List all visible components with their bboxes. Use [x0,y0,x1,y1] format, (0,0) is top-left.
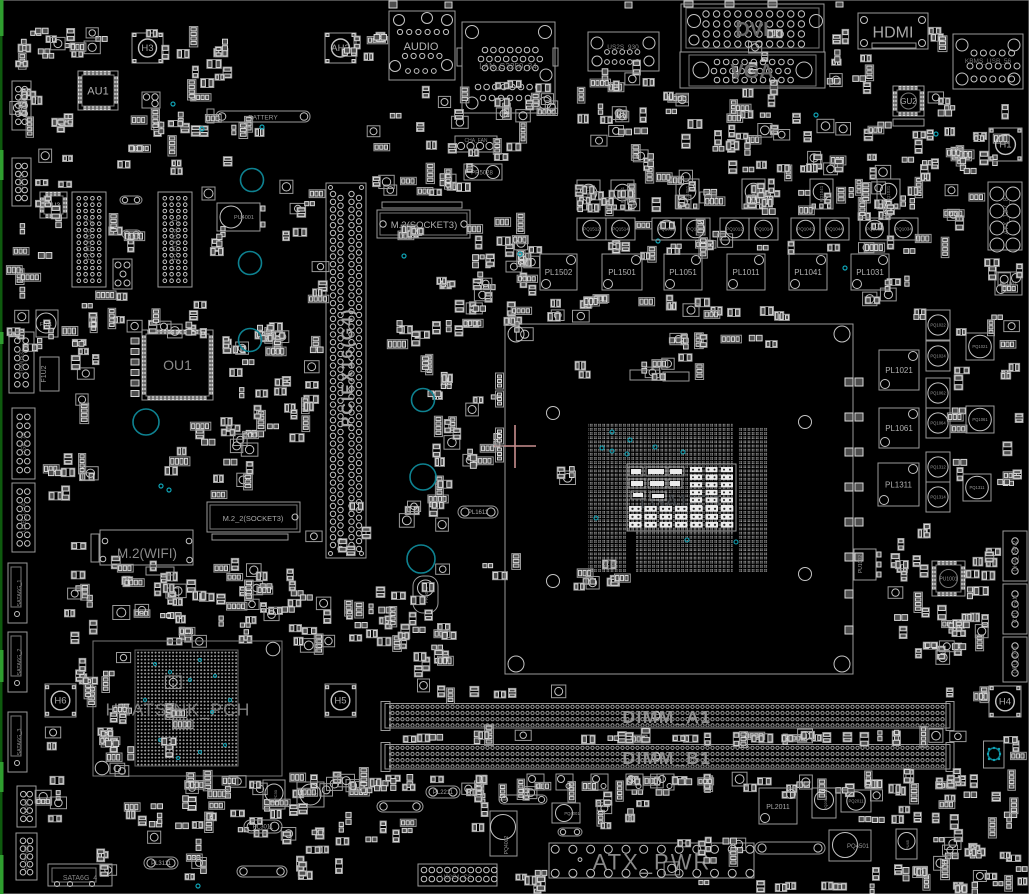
svg-text:OU1: OU1 [163,357,192,373]
svg-text:H3: H3 [141,43,153,54]
svg-text:PCIEX16(G4): PCIEX16(G4) [340,308,357,428]
svg-text:CPU_OPT: CPU_OPT [1013,645,1019,674]
svg-text:H4: H4 [999,697,1011,708]
svg-text:CHA_FAN2: CHA_FAN2 [1013,540,1019,572]
svg-text:PQ1514: PQ1514 [612,227,629,232]
svg-text:KBMS_USB_56: KBMS_USB_56 [965,58,1012,65]
svg-text:COM1: COM1 [25,797,31,815]
svg-text:US2S_930: US2S_930 [607,44,639,51]
svg-text:PQ1012: PQ1012 [726,227,743,232]
svg-text:PQ1014: PQ1014 [755,227,772,232]
svg-text:M.2(WIFI): M.2(WIFI) [117,546,177,561]
svg-text:F_PANEL: F_PANEL [25,843,31,870]
svg-text:USB_7B: USB_7B [22,432,28,455]
svg-text:PQ1512: PQ1512 [583,227,600,232]
svg-text:AU1: AU1 [87,86,108,98]
svg-text:PQ1032: PQ1032 [866,227,883,232]
svg-text:PQ1021: PQ1021 [972,344,988,349]
svg-text:PQ4001: PQ4001 [564,811,580,816]
svg-text:SATA6G_2: SATA6G_2 [17,648,23,675]
svg-text:PL1611: PL1611 [468,510,489,516]
svg-text:AUDIO: AUDIO [404,41,439,53]
svg-text:PU45: PU45 [905,839,910,850]
svg-text:PQ1314: PQ1314 [930,495,946,500]
svg-text:PL1011: PL1011 [733,268,761,277]
svg-text:PLED(G3L_2: PLED(G3L_2 [86,219,93,261]
svg-text:PU1002: PU1002 [858,555,864,573]
svg-text:LAN_G3250_34: LAN_G3250_34 [479,62,537,71]
svg-text:PQ2011: PQ2011 [848,799,864,804]
svg-text:H1: H1 [999,140,1011,151]
svg-text:PL1311: PL1311 [885,480,913,489]
svg-text:PQ4501: PQ4501 [847,844,870,850]
svg-text:H5: H5 [334,696,346,707]
svg-text:DIMM_B1: DIMM_B1 [622,748,711,768]
svg-text:PQ1062: PQ1062 [930,391,946,396]
svg-text:PL1502: PL1502 [545,268,573,277]
svg-text:HDMI: HDMI [873,25,914,42]
svg-text:PU4001: PU4001 [234,215,254,221]
svg-text:PQ1031: PQ1031 [886,185,891,202]
svg-text:PL2011: PL2011 [766,804,790,811]
svg-text:CHA_FAN: CHA_FAN [464,138,487,144]
svg-text:ATX_12V_8: ATX_12V_8 [1003,197,1010,234]
svg-text:SATA6G_4: SATA6G_4 [63,875,97,882]
svg-text:PQ1311: PQ1311 [969,485,985,490]
svg-text:DVI: DVI [735,19,768,41]
svg-text:PQ2012: PQ2012 [823,795,828,810]
svg-text:PQ1042: PQ1042 [797,227,814,232]
svg-text:H6: H6 [54,696,66,707]
svg-text:U32G1_C2: U32G1_C2 [441,875,472,881]
svg-text:PLED(G3L_1: PLED(G3L_1 [172,219,179,261]
svg-text:PQ1022: PQ1022 [930,323,946,328]
svg-text:PL1021: PL1021 [885,366,913,375]
svg-text:PQ3011: PQ3011 [303,792,319,797]
svg-text:PQ4002: PQ4002 [504,836,510,855]
svg-text:SATA6G_1: SATA6G_1 [17,579,23,606]
svg-text:ATX_PWR: ATX_PWR [593,850,712,875]
svg-text:PC30: PC30 [273,789,278,800]
svg-text:PQ1041: PQ1041 [819,185,824,202]
svg-text:PL1041: PL1041 [794,268,822,277]
svg-text:PQ1044: PQ1044 [826,227,843,232]
svg-text:SATA6G_3: SATA6G_3 [17,728,23,755]
svg-text:VGA: VGA [730,61,773,83]
svg-text:PR5028: PR5028 [471,171,493,177]
svg-text:CCM1: CCM1 [20,173,26,191]
svg-text:PL1031: PL1031 [856,268,884,277]
svg-text:AAFP: AAFP [20,98,26,114]
svg-text:PQ1064: PQ1064 [930,421,946,426]
svg-text:CPU_FAN: CPU_FAN [1013,595,1019,623]
svg-text:PQ1034: PQ1034 [895,227,912,232]
svg-text:USB_1314: USB_1314 [22,502,28,532]
svg-text:PQ1061: PQ1061 [972,417,988,422]
svg-text:PL3111: PL3111 [151,861,171,867]
svg-text:PQ1312: PQ1312 [930,465,946,470]
svg-text:TPM(G3): TPM(G3) [20,350,26,375]
svg-text:F1U2: F1U2 [41,365,48,382]
svg-text:GU2: GU2 [900,97,917,106]
svg-text:PL2211: PL2211 [433,790,454,796]
svg-text:PQ1052: PQ1052 [658,227,675,232]
svg-text:PU1001: PU1001 [939,576,957,582]
svg-text:DIMM_A1: DIMM_A1 [622,707,711,727]
svg-text:PL1051: PL1051 [669,268,697,277]
svg-text:PQ1054: PQ1054 [687,227,704,232]
svg-text:PL1061: PL1061 [885,424,913,433]
svg-text:PQ1024: PQ1024 [930,354,946,359]
svg-text:PL1501: PL1501 [608,268,636,277]
svg-text:M.2_2(SOCKET3): M.2_2(SOCKET3) [223,514,284,523]
svg-text:PL3011: PL3011 [253,825,274,831]
